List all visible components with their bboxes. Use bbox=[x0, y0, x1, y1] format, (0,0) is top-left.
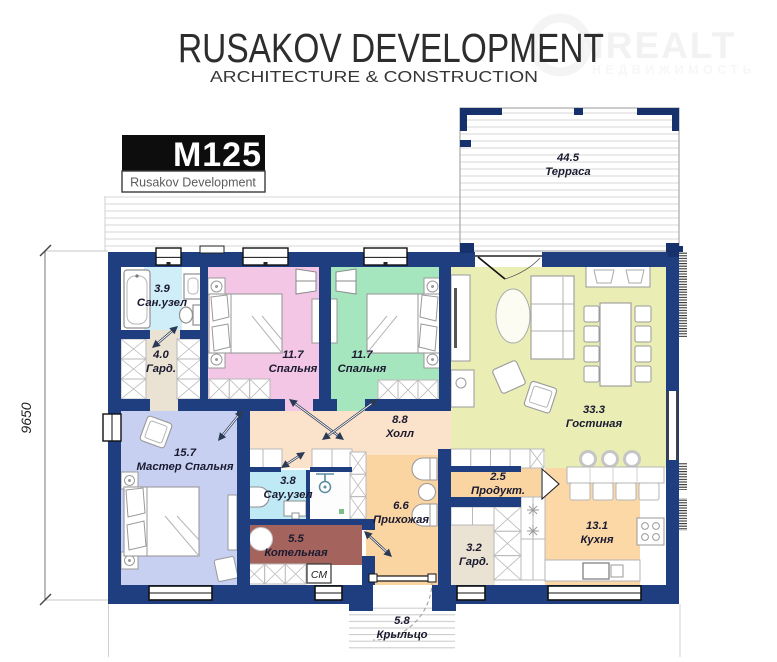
svg-text:8.8: 8.8 bbox=[392, 414, 408, 426]
svg-text:5.8: 5.8 bbox=[394, 615, 410, 627]
svg-text:Гард.: Гард. bbox=[459, 556, 489, 568]
svg-text:Продукт.: Продукт. bbox=[471, 485, 525, 497]
svg-text:11.7: 11.7 bbox=[282, 349, 304, 361]
svg-text:4.0: 4.0 bbox=[152, 349, 169, 361]
svg-text:Спальня: Спальня bbox=[338, 363, 387, 375]
svg-text:Холл: Холл bbox=[385, 428, 414, 440]
svg-text:Rusakov Development: Rusakov Development bbox=[130, 176, 256, 190]
svg-text:6.6: 6.6 bbox=[393, 500, 409, 512]
svg-text:15.7: 15.7 bbox=[174, 447, 197, 459]
svg-text:11.7: 11.7 bbox=[351, 349, 373, 361]
svg-text:2.5: 2.5 bbox=[489, 471, 506, 483]
svg-text:Терраса: Терраса bbox=[545, 166, 590, 178]
svg-text:RUSAKOV DEVELOPMENT: RUSAKOV DEVELOPMENT bbox=[178, 25, 604, 71]
svg-text:СМ: СМ bbox=[311, 569, 327, 581]
svg-text:Гостиная: Гостиная bbox=[566, 418, 623, 430]
svg-text:M125: M125 bbox=[173, 136, 262, 174]
svg-text:Сау.узел: Сау.узел bbox=[263, 489, 312, 501]
svg-text:13.1: 13.1 bbox=[586, 520, 608, 532]
svg-text:Спальня: Спальня bbox=[269, 363, 318, 375]
svg-text:Гард.: Гард. bbox=[146, 363, 176, 375]
svg-text:Котельная: Котельная bbox=[264, 547, 328, 559]
svg-text:3.8: 3.8 bbox=[280, 475, 296, 487]
svg-text:Прихожая: Прихожая bbox=[373, 514, 429, 526]
svg-text:3.2: 3.2 bbox=[466, 542, 482, 554]
svg-text:44.5: 44.5 bbox=[556, 152, 580, 164]
svg-text:ARCHITECTURE & CONSTRUCTION: ARCHITECTURE & CONSTRUCTION bbox=[210, 69, 538, 86]
svg-text:9650: 9650 bbox=[18, 402, 34, 433]
svg-text:Кухня: Кухня bbox=[581, 534, 614, 546]
svg-text:33.3: 33.3 bbox=[583, 404, 606, 416]
svg-text:Сан.узел: Сан.узел bbox=[137, 297, 187, 309]
svg-text:5.5: 5.5 bbox=[288, 533, 304, 545]
svg-text:Крыльцо: Крыльцо bbox=[377, 629, 428, 641]
svg-text:3.9: 3.9 bbox=[154, 283, 170, 295]
svg-text:НЕДВИЖИМОСТЬ: НЕДВИЖИМОСТЬ bbox=[592, 63, 756, 77]
svg-text:Мастер Спальня: Мастер Спальня bbox=[136, 461, 233, 473]
